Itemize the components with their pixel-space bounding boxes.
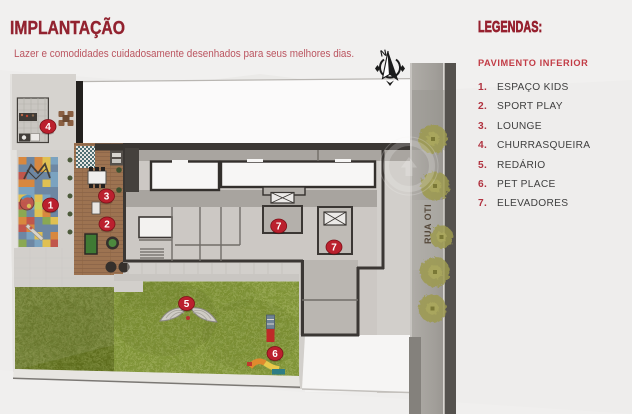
svg-text:2: 2 (104, 220, 110, 231)
svg-text:7: 7 (276, 222, 282, 233)
svg-text:3: 3 (104, 192, 110, 203)
svg-text:7: 7 (331, 243, 337, 254)
svg-text:5: 5 (184, 299, 190, 310)
svg-text:1: 1 (48, 201, 54, 212)
svg-text:6: 6 (272, 349, 278, 360)
svg-text:4: 4 (45, 122, 51, 133)
